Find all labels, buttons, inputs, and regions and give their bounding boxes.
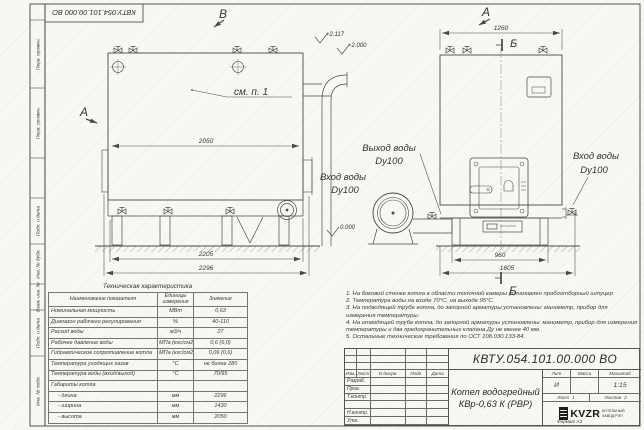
param-name: Температура уходящих газов	[49, 359, 158, 370]
param-name: - высота	[49, 412, 158, 423]
rev-col-data: Дата	[427, 370, 448, 378]
table-row: Рабочее давление водыМПа (кгс/см2)0,6 (6…	[49, 338, 248, 349]
flue-duct	[303, 72, 347, 246]
dim-text-1260: 1260	[494, 25, 509, 32]
view-label-a-top: А	[481, 5, 490, 19]
row-label-utv: Утв.	[345, 417, 371, 425]
manufacturer-logo: KVZR КОТЕЛЬНЫЙ ЗАВОД РЭП Формат А3	[543, 402, 641, 425]
inlet-right-label-line2: Dy100	[580, 165, 608, 176]
scale-label: Масштаб	[599, 370, 641, 377]
note-item: 3. На подводящей трубе котла, до запорно…	[346, 305, 638, 319]
param-unit: °С	[158, 370, 194, 381]
param-value: 1430	[194, 402, 248, 413]
row-label-razrab: Разраб.	[345, 378, 371, 386]
product-title-line2: КВр-0,63 К (РВР)	[459, 398, 532, 410]
strip-label: Перв. примен.	[36, 107, 42, 139]
note-item: 5. Остальные технические требования по О…	[346, 334, 638, 341]
strip-label: Инв. № дубл.	[36, 249, 42, 279]
scale-value: 1:15	[599, 378, 641, 393]
logo-caption: КОТЕЛЬНЫЙ ЗАВОД РЭП	[602, 409, 625, 417]
col-header: Единицы измерения	[158, 293, 194, 307]
mass-value	[571, 378, 599, 393]
param-value: 2050	[194, 412, 248, 423]
revision-header-row: Изм. Лист N докум. Подп. Дата	[345, 370, 448, 378]
furnace-door	[470, 158, 528, 217]
inlet-right-label-line1: Вход воды	[573, 151, 619, 162]
elevation-0000: 0.000	[340, 225, 356, 231]
sheets-label: Листов	[604, 395, 621, 400]
rev-col-dokum: N докум.	[371, 370, 407, 378]
param-name: - ширина	[49, 402, 158, 413]
boiler-front-view	[440, 48, 578, 250]
row-label-tkontr: Т.контр.	[345, 394, 371, 402]
valve-icons-side	[114, 47, 277, 215]
format-note: Формат А3	[557, 419, 582, 424]
left-strip-labels: Перв. примен. Перв. примен. Подп. и дата…	[36, 38, 42, 406]
param-unit: МПа (кгс/см2)	[158, 349, 194, 360]
row-label-prov: Пров.	[345, 386, 371, 394]
param-name: Габариты котла	[49, 381, 158, 392]
dim-text-2296: 2296	[198, 265, 214, 272]
param-name: - длина	[49, 391, 158, 402]
dim-text-960: 960	[495, 252, 506, 259]
fan-blower	[368, 193, 452, 244]
section-label-b-top: Б	[510, 38, 517, 50]
dim-text-1605: 1605	[500, 265, 515, 272]
sheets-value: 2	[624, 395, 627, 400]
rev-col-podp: Подп.	[406, 370, 427, 378]
note-item: 4. На отводящей трубе котла, до запорной…	[346, 320, 638, 334]
lifting-lug-icon	[110, 59, 246, 75]
row-label-blank	[345, 401, 371, 409]
table-row: Диапазон рабочего регулирования%40-110	[49, 317, 248, 328]
param-unit: мм	[158, 402, 194, 413]
param-value: 70/95	[194, 370, 248, 381]
param-value: не более 280	[194, 359, 248, 370]
meta-header-row: Лит Масса Масштаб	[543, 370, 641, 378]
sheet-cell: Лист 1	[543, 394, 590, 401]
ground-hatch	[95, 246, 580, 252]
strip-label: Подп. и дата	[36, 206, 42, 236]
table-row: Температура уходящих газов°Сне более 280	[49, 359, 248, 370]
param-unit: м3/ч	[158, 328, 194, 339]
param-name: Расход воды	[49, 328, 158, 339]
strip-label: Инв. № подл.	[36, 376, 42, 406]
logo-text: KVZR	[570, 408, 600, 420]
dimensions	[104, 29, 575, 276]
callout-text: см. п. 1	[234, 87, 268, 98]
outlet-label-line1: Выход воды	[362, 143, 415, 154]
title-block-revision-grid: Изм. Лист N докум. Подп. Дата Разраб. Пр…	[345, 349, 449, 425]
param-unit: мм	[158, 391, 194, 402]
view-label-v: В	[219, 7, 227, 21]
elevation-2117: +2.117	[326, 32, 345, 38]
inlet-left-label-line2: Dy100	[331, 185, 359, 196]
boiler-side-view	[102, 53, 312, 245]
param-unit	[158, 381, 194, 392]
technical-notes: 1. На боковой стенке котла в области топ…	[346, 291, 638, 341]
param-name: Номинальная мощность	[49, 307, 158, 318]
valve-icons-front	[446, 47, 576, 216]
elevation-marks: +2.117 +2.000 0.000	[315, 32, 367, 236]
param-name: Диапазон рабочего регулирования	[49, 317, 158, 328]
param-value	[194, 381, 248, 392]
dim-text-2205: 2205	[198, 251, 214, 258]
tech-table-header: Наименование показателя Единицы измерени…	[49, 293, 248, 307]
param-name: Гидравлическое сопротивление котла	[49, 349, 158, 360]
param-name: Рабочее давление воды	[49, 338, 158, 349]
param-value: 27	[194, 328, 248, 339]
rev-col-izm: Изм.	[345, 370, 357, 378]
title-block: Изм. Лист N докум. Подп. Дата Разраб. Пр…	[344, 348, 640, 426]
param-value: 0,06 (0,6)	[194, 349, 248, 360]
sheets-cell: Листов 2	[590, 394, 641, 401]
table-row: Гидравлическое сопротивление котлаМПа (к…	[49, 349, 248, 360]
mass-label: Масса	[571, 370, 599, 377]
col-header: Значение	[194, 293, 248, 307]
strip-label: Подп. и дата	[36, 318, 42, 348]
param-name: Температура воды (вход/выход)	[49, 370, 158, 381]
param-unit: мм	[158, 412, 194, 423]
table-row: Температура воды (вход/выход)°С70/95	[49, 370, 248, 381]
logo-caption-line2: ЗАВОД РЭП	[602, 414, 623, 418]
dimension-texts: 2050 2205 2296 1260 960 1605	[198, 25, 515, 272]
param-unit: °С	[158, 359, 194, 370]
table-row: Габариты котла	[49, 381, 248, 392]
note-item: 1. На боковой стенке котла в области топ…	[346, 291, 638, 298]
elevation-2000: +2.000	[348, 43, 367, 49]
sheet-row: Лист 1 Листов 2	[543, 394, 641, 402]
callout-see-note: см. п. 1	[191, 87, 292, 98]
col-header: Наименование показателя	[49, 293, 158, 307]
sheet-label: Лист	[557, 395, 569, 400]
param-value: 2296	[194, 391, 248, 402]
doc-number-box: КВТУ.054.101.00.000 ВО	[45, 4, 143, 22]
duct-valve-icon	[428, 213, 436, 220]
title-block-doc-number: КВТУ.054.101.00.000 ВО	[449, 349, 641, 370]
rev-col-list: Лист	[357, 370, 371, 378]
view-markers: В А А Б Б	[79, 5, 517, 298]
tech-table-title: Техническая характеристика	[48, 283, 247, 290]
param-value: 40-110	[194, 317, 248, 328]
row-label-nkontr: Н.контр.	[345, 409, 371, 417]
burner-flange	[278, 201, 297, 220]
doc-number-rotated: КВТУ.054.101.00.000 ВО	[52, 8, 136, 17]
param-unit: МВт	[158, 307, 194, 318]
dim-text-2050: 2050	[198, 138, 214, 145]
sheet-value: 1	[572, 395, 575, 400]
strip-label: Перв. примен.	[36, 38, 42, 70]
product-title: Котел водогрейный КВр-0,63 К (РВР)	[449, 370, 543, 425]
table-row: - высотамм2050	[49, 412, 248, 423]
param-value: 0,6 (6,0)	[194, 338, 248, 349]
lit-label: Лит	[543, 370, 571, 377]
meta-value-row: И 1:15	[543, 378, 641, 394]
lit-value: И	[543, 378, 571, 393]
tech-table: Наименование показателя Единицы измерени…	[48, 292, 248, 424]
pipe-labels: Выход воды Dy100 Вход воды Dy100 Вход во…	[320, 143, 619, 214]
param-unit: МПа (кгс/см2)	[158, 338, 194, 349]
table-row: Расход водым3/ч27	[49, 328, 248, 339]
param-value: 0,63	[194, 307, 248, 318]
table-row: Номинальная мощностьМВт0,63	[49, 307, 248, 318]
outlet-label-line2: Dy100	[375, 156, 403, 167]
product-title-line1: Котел водогрейный	[451, 386, 539, 398]
inlet-left-label-line1: Вход воды	[320, 172, 366, 183]
table-row: - ширинамм1430	[49, 402, 248, 413]
strip-label: Взам. инв. №	[36, 282, 42, 312]
param-unit: %	[158, 317, 194, 328]
tech-characteristics: Техническая характеристика Наименование …	[48, 283, 247, 424]
section-label-a: А	[79, 105, 88, 119]
table-row: - длинамм2296	[49, 391, 248, 402]
